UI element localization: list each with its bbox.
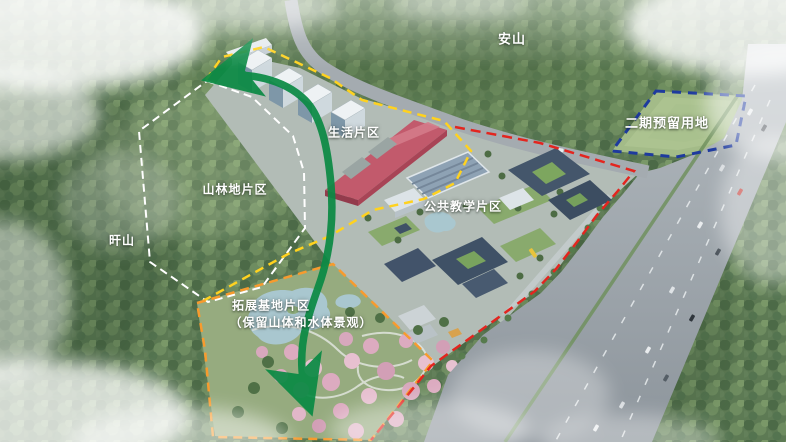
campus-master-plan-render: 安山 二期预留用地 生活片区 山林地片区 旰山 公共教学片区 拓展基地片区 （保… bbox=[0, 0, 786, 442]
master-plan-canvas bbox=[0, 0, 786, 442]
top-haze-veil bbox=[0, 0, 786, 70]
